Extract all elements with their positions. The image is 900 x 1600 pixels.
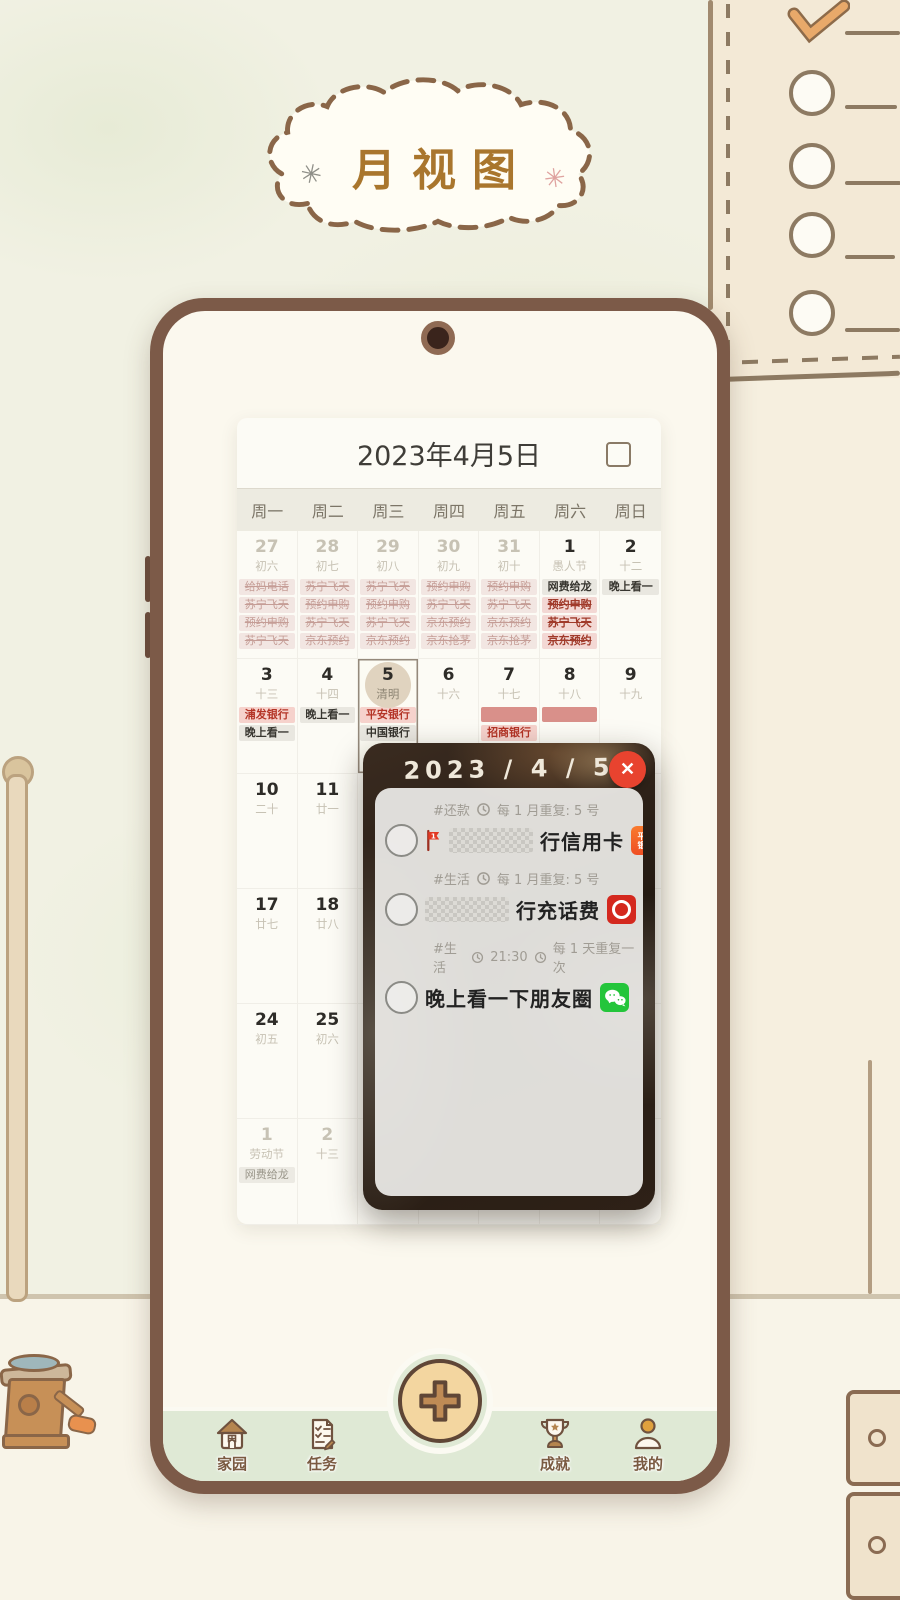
wall-panel (730, 378, 900, 1296)
day-lunar-label: 初九 (419, 558, 479, 574)
task-checkbox[interactable] (385, 981, 418, 1014)
task-checkbox[interactable] (385, 893, 418, 926)
phone-mockup: 2023年4月5日 周一周二周三周四周五周六周日 27初六给妈电话苏宁飞天预约申… (150, 298, 730, 1494)
task-list-panel: #还款每 1 月重复: 5 号1行信用卡平安银行#生活每 1 月重复: 5 号行… (375, 788, 643, 1196)
calendar-day-cell[interactable]: 25初六 (298, 1004, 359, 1119)
calendar-event-chip[interactable]: 苏宁飞天 (300, 615, 356, 631)
calendar-day-cell[interactable]: 29初八苏宁飞天预约申购苏宁飞天京东预约 (358, 531, 419, 659)
calendar-event-chip[interactable]: 苏宁飞天 (542, 615, 598, 631)
day-lunar-label: 十三 (298, 1146, 358, 1162)
day-number: 11 (298, 780, 358, 800)
day-number: 9 (600, 665, 661, 685)
task-meta: #生活每 1 月重复: 5 号 (433, 869, 635, 888)
peg-circle (789, 143, 835, 189)
calendar-event-chip[interactable]: 京东抢茅 (421, 633, 477, 649)
weekday-label: 周日 (600, 498, 661, 522)
drawer-sketch (846, 1492, 900, 1600)
weekday-label: 周五 (479, 498, 540, 522)
task-tag: #生活 (433, 869, 470, 888)
trophy-icon (534, 1414, 576, 1454)
tab-label: 成就 (517, 1453, 593, 1474)
calendar-event-chip[interactable]: 苏宁飞天 (239, 597, 295, 613)
day-lunar-label: 廿一 (298, 801, 358, 817)
pingan-bank-badge: 平安银行 (631, 826, 643, 855)
day-number: 17 (237, 895, 297, 915)
calendar-event-chip[interactable]: 京东预约 (542, 633, 598, 649)
drawer-sketch (846, 1390, 900, 1486)
calendar-event-chip[interactable]: 中国银行 (360, 725, 416, 741)
calendar-event-chip[interactable]: 苏宁飞天 (481, 597, 537, 613)
day-lunar-label: 初六 (237, 558, 297, 574)
day-number: 6 (419, 665, 479, 685)
day-number: 24 (237, 1010, 297, 1030)
calendar-event-chip[interactable]: 给妈电话 (239, 579, 295, 595)
day-number: 4 (298, 665, 358, 685)
tasks-icon (301, 1414, 343, 1454)
calendar-event-chip[interactable]: 京东预约 (481, 615, 537, 631)
calendar-event-chip[interactable]: 平安银行 (360, 707, 416, 723)
task-tag: #还款 (433, 800, 470, 819)
calendar-event-chip[interactable]: 京东预约 (421, 615, 477, 631)
day-lunar-label: 十八 (540, 686, 600, 702)
task-repeat: 每 1 月重复: 5 号 (497, 800, 599, 819)
repeat-icon (476, 871, 491, 886)
calendar-event-chip[interactable]: 招商银行 (481, 725, 537, 741)
task-meta: #还款每 1 月重复: 5 号 (433, 800, 635, 819)
shelf-sketch (868, 1060, 872, 1294)
day-number: 31 (479, 537, 539, 557)
day-lunar-label: 十三 (237, 686, 297, 702)
calendar-event-chip[interactable]: 苏宁飞天 (360, 615, 416, 631)
task-title: 行信用卡 (540, 826, 624, 855)
day-lunar-label: 初十 (479, 558, 539, 574)
day-detail-popup: 2023 / 4 / 5 ✕ #还款每 1 月重复: 5 号1行信用卡平安银行#… (363, 743, 655, 1210)
calendar-event-chip[interactable]: 浦发银行 (239, 707, 295, 723)
calendar-event-chip[interactable]: 苏宁飞天 (239, 633, 295, 649)
day-lunar-label: 初五 (237, 1031, 297, 1047)
day-number: 29 (358, 537, 418, 557)
select-checkbox[interactable] (606, 442, 631, 467)
calendar-day-cell[interactable]: 1愚人节网费给龙预约申购苏宁飞天京东预约 (540, 531, 601, 659)
day-lunar-label: 十二 (600, 558, 661, 574)
task-checkbox[interactable] (385, 824, 418, 857)
day-number: 30 (419, 537, 479, 557)
calendar-day-cell[interactable]: 28初七苏宁飞天预约申购苏宁飞天京东预约 (298, 531, 359, 659)
close-icon: ✕ (620, 759, 635, 780)
task-title: 行充话费 (516, 895, 600, 924)
calendar-day-cell[interactable]: 3十三浦发银行晚上看一 (237, 659, 298, 774)
weekday-label: 周二 (298, 498, 359, 522)
calendar-day-cell[interactable]: 10二十 (237, 774, 298, 889)
tab-profile[interactable]: 我的 (610, 1414, 686, 1474)
day-lunar-label: 劳动节 (237, 1146, 297, 1162)
page-title: 月视图 (256, 134, 612, 198)
sketch-line (845, 31, 900, 35)
calendar-day-cell[interactable]: 2十三 (298, 1119, 359, 1225)
calendar-event-chip[interactable]: 预约申购 (300, 597, 356, 613)
calendar-event-chip[interactable]: 晚上看一 (300, 707, 356, 723)
sketch-line (845, 181, 900, 185)
home-icon (211, 1414, 253, 1454)
day-lunar-label: 廿七 (237, 916, 297, 932)
task-repeat: 每 1 月重复: 5 号 (497, 869, 599, 888)
calendar-header: 2023年4月5日 (237, 418, 661, 488)
calendar-event-chip[interactable]: 苏宁飞天 (300, 579, 356, 595)
day-number: 18 (298, 895, 358, 915)
task-repeat: 每 1 天重复一次 (553, 938, 635, 976)
calendar-event-chip[interactable]: 预约申购 (542, 597, 598, 613)
calendar-day-cell[interactable]: 27初六给妈电话苏宁飞天预约申购苏宁飞天 (237, 531, 298, 659)
day-number: 5 (358, 665, 418, 685)
wood-check-sketch (786, 0, 850, 44)
peg-circle (789, 290, 835, 336)
day-number: 10 (237, 780, 297, 800)
day-lunar-label: 二十 (237, 801, 297, 817)
calendar-day-cell[interactable]: 11廿一 (298, 774, 359, 889)
tab-label: 任务 (284, 1453, 360, 1474)
app-screenshot: ✳ ✳ 月视图 2023年4月5日 周一周二周三周四周五周六周日 27初六给妈电… (0, 0, 900, 1600)
calendar-event-chip[interactable]: 网费给龙 (542, 579, 598, 595)
sketch-line (845, 255, 895, 259)
calendar-day-cell[interactable]: 24初五 (237, 1004, 298, 1119)
redacted-text (425, 897, 509, 922)
task-item[interactable]: #生活21:30每 1 天重复一次晚上看一下朋友圈 (375, 930, 643, 1018)
day-lunar-label: 初六 (298, 1031, 358, 1047)
day-number: 2 (298, 1125, 358, 1145)
sketch-line (845, 328, 900, 332)
repeat-icon (476, 802, 491, 817)
bank-app-badge (607, 895, 636, 924)
weekday-label: 周一 (237, 498, 298, 522)
day-lunar-label: 初八 (358, 558, 418, 574)
calendar-day-cell[interactable]: 1劳动节网费给龙 (237, 1119, 298, 1225)
profile-icon (627, 1414, 669, 1454)
tab-label: 家园 (194, 1453, 270, 1474)
calendar-event-redacted[interactable] (542, 707, 598, 722)
weekday-label: 周四 (419, 498, 480, 522)
tab-label: 我的 (610, 1453, 686, 1474)
day-lunar-label: 十六 (419, 686, 479, 702)
calendar-day-cell[interactable]: 30初九预约申购苏宁飞天京东预约京东抢茅 (419, 531, 480, 659)
calendar-event-chip[interactable]: 网费给龙 (239, 1167, 295, 1183)
peg-circle (789, 70, 835, 116)
time-icon (471, 950, 484, 965)
calendar-day-cell[interactable]: 18廿八 (298, 889, 359, 1004)
day-number: 1 (540, 537, 600, 557)
calendar-day-cell[interactable]: 2十二晚上看一 (600, 531, 661, 659)
day-lunar-label: 初七 (298, 558, 358, 574)
calendar-event-chip[interactable]: 预约申购 (239, 615, 295, 631)
day-number: 7 (479, 665, 539, 685)
tab-tasks[interactable]: 任务 (284, 1414, 360, 1474)
day-number: 8 (540, 665, 600, 685)
calendar-event-chip[interactable]: 京东预约 (300, 633, 356, 649)
day-lunar-label: 廿八 (298, 916, 358, 932)
close-button[interactable]: ✕ (609, 751, 646, 788)
calendar-event-chip[interactable]: 预约申购 (421, 579, 477, 595)
calendar-event-chip[interactable]: 晚上看一 (239, 725, 295, 741)
calendar-event-chip[interactable]: 苏宁飞天 (360, 579, 416, 595)
repeat-icon (534, 950, 547, 965)
day-number: 3 (237, 665, 297, 685)
calendar-event-chip[interactable]: 京东抢茅 (481, 633, 537, 649)
priority-flag-icon: 1 (425, 829, 442, 852)
task-item[interactable]: #生活每 1 月重复: 5 号行充话费 (375, 861, 643, 930)
calendar-event-chip[interactable]: 苏宁飞天 (421, 597, 477, 613)
day-number: 25 (298, 1010, 358, 1030)
task-title: 晚上看一下朋友圈 (425, 983, 593, 1012)
calendar-event-chip[interactable]: 晚上看一 (602, 579, 659, 595)
calendar-day-cell[interactable]: 4十四晚上看一 (298, 659, 359, 774)
task-item[interactable]: #还款每 1 月重复: 5 号1行信用卡平安银行 (375, 792, 643, 861)
calendar-day-cell[interactable]: 17廿七 (237, 889, 298, 1004)
tab-achievements[interactable]: 成就 (517, 1414, 593, 1474)
day-lunar-label: 清明 (358, 686, 418, 702)
coffee-grinder-sketch (0, 1332, 90, 1464)
peg-circle (789, 212, 835, 258)
weekday-label: 周六 (540, 498, 601, 522)
task-tag: #生活 (433, 938, 465, 976)
weekday-row: 周一周二周三周四周五周六周日 (237, 488, 661, 531)
door-dashed-line (726, 4, 730, 356)
pole-sketch (6, 774, 28, 1302)
camera-dot (421, 321, 455, 355)
task-meta: #生活21:30每 1 天重复一次 (433, 938, 635, 976)
door-frame-line (708, 0, 713, 310)
calendar-date-title: 2023年4月5日 (357, 434, 541, 473)
day-number: 2 (600, 537, 661, 557)
sketch-line (845, 105, 897, 109)
tab-home[interactable]: 家园 (194, 1414, 270, 1474)
day-number: 28 (298, 537, 358, 557)
day-lunar-label: 十七 (479, 686, 539, 702)
plus-icon (412, 1373, 468, 1429)
day-lunar-label: 愚人节 (540, 558, 600, 574)
day-lunar-label: 十四 (298, 686, 358, 702)
svg-text:1: 1 (431, 831, 436, 840)
calendar-event-redacted[interactable] (481, 707, 537, 722)
redacted-text (449, 828, 533, 853)
day-number: 27 (237, 537, 297, 557)
weekday-label: 周三 (358, 498, 419, 522)
task-time: 21:30 (490, 950, 527, 965)
day-lunar-label: 十九 (600, 686, 661, 702)
page-title-cloud: ✳ ✳ 月视图 (256, 76, 612, 240)
day-number: 1 (237, 1125, 297, 1145)
add-task-button[interactable] (398, 1359, 482, 1443)
calendar-event-chip[interactable]: 京东预约 (360, 633, 416, 649)
calendar-event-chip[interactable]: 预约申购 (360, 597, 416, 613)
phone-screen: 2023年4月5日 周一周二周三周四周五周六周日 27初六给妈电话苏宁飞天预约申… (163, 311, 717, 1481)
calendar-event-chip[interactable]: 预约申购 (481, 579, 537, 595)
wechat-badge (600, 983, 629, 1012)
calendar-day-cell[interactable]: 31初十预约申购苏宁飞天京东预约京东抢茅 (479, 531, 540, 659)
